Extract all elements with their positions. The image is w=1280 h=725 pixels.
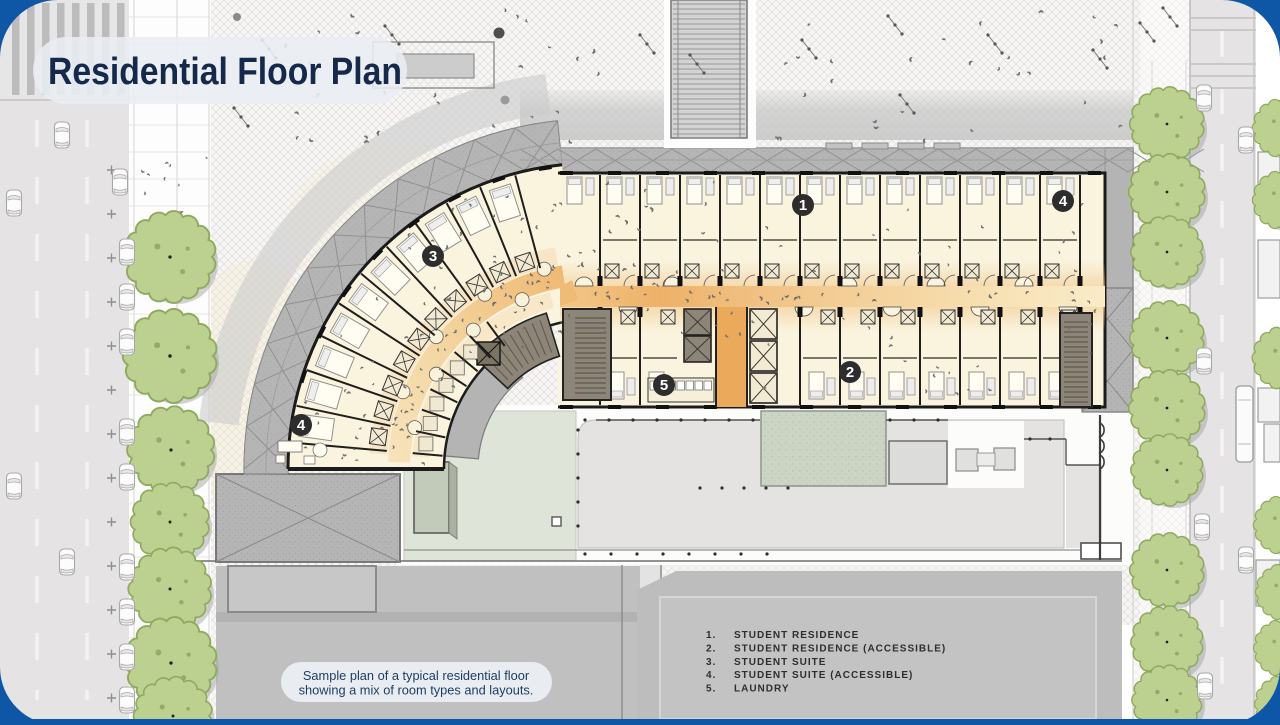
svg-text:STUDENT RESIDENCE: STUDENT RESIDENCE	[734, 630, 859, 641]
svg-text:4: 4	[1059, 193, 1068, 210]
svg-text:2.: 2.	[706, 643, 716, 654]
svg-text:5: 5	[660, 377, 668, 394]
svg-text:LAUNDRY: LAUNDRY	[734, 684, 790, 695]
svg-text:1.: 1.	[706, 630, 716, 641]
svg-text:1: 1	[799, 197, 807, 214]
svg-text:4.: 4.	[706, 670, 716, 681]
svg-text:STUDENT SUITE: STUDENT SUITE	[734, 657, 826, 668]
svg-text:2: 2	[846, 364, 854, 381]
svg-text:4: 4	[297, 417, 306, 434]
svg-text:3: 3	[429, 248, 437, 265]
svg-text:3.: 3.	[706, 657, 716, 668]
svg-text:Sample plan of a typical resid: Sample plan of a typical residential flo…	[303, 668, 530, 683]
svg-text:5.: 5.	[706, 684, 716, 695]
svg-text:STUDENT SUITE (ACCESSIBLE): STUDENT SUITE (ACCESSIBLE)	[734, 670, 913, 681]
svg-text:STUDENT RESIDENCE (ACCESSIBLE): STUDENT RESIDENCE (ACCESSIBLE)	[734, 643, 946, 654]
svg-text:showing a mix of room types an: showing a mix of room types and layouts.	[299, 683, 534, 698]
svg-text:Residential Floor Plan: Residential Floor Plan	[48, 51, 402, 93]
